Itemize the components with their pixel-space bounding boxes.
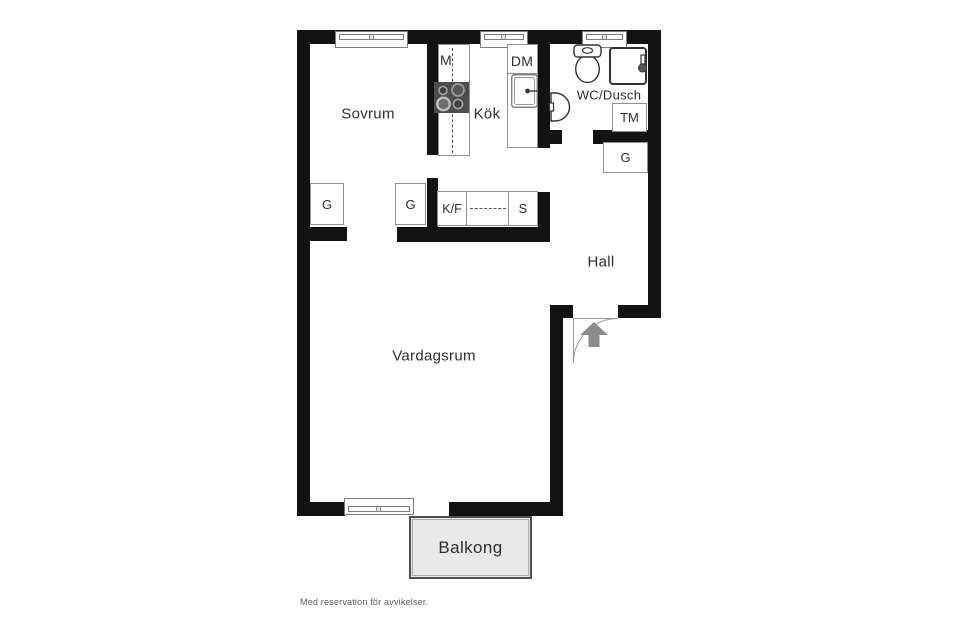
- toilet-icon: [572, 44, 603, 84]
- appliance-label-dishwasher: DM: [511, 53, 533, 69]
- pantry-cell: S: [508, 192, 537, 225]
- window-mullion: [602, 35, 607, 39]
- wardrobe-label: G: [620, 150, 630, 165]
- floorplan-canvas: K/F S G G G TM: [0, 0, 960, 640]
- room-label-kok: Kök: [474, 106, 501, 123]
- room-label-balkong: Balkong: [438, 538, 502, 558]
- wardrobe-g-bedroom: G: [310, 183, 344, 225]
- window-glass: [348, 506, 410, 512]
- wardrobe-g-kitchen: G: [395, 183, 426, 225]
- pantry-label: S: [519, 201, 528, 216]
- sink-icon: [511, 74, 538, 108]
- wall-right-lower: [550, 305, 563, 516]
- wall-kitchen-bottom: [397, 227, 549, 242]
- wardrobe-label: G: [405, 197, 415, 212]
- washing-machine-label: TM: [620, 110, 639, 125]
- washbasin-icon: [549, 91, 572, 123]
- wall-entry-stub-left: [550, 305, 573, 318]
- wall-right-upper: [648, 30, 661, 318]
- wall-left: [297, 30, 310, 516]
- room-label-vardagsrum: Vardagsrum: [392, 348, 476, 365]
- room-label-sovrum: Sovrum: [341, 106, 394, 123]
- fridge-freezer-cell: K/F: [438, 192, 466, 225]
- disclaimer-text: Med reservation för avvikelser.: [300, 597, 428, 607]
- window-bedroom: [335, 31, 408, 48]
- window-livingroom: [344, 498, 414, 515]
- kitchen-counter-row: K/F S: [437, 191, 538, 226]
- balcony: Balkong: [409, 516, 532, 579]
- counter-middle-cell: [466, 192, 508, 225]
- room-label-hall: Hall: [587, 254, 614, 271]
- counter-dashed-line: [470, 208, 506, 209]
- wall-bottom-left: [297, 502, 345, 516]
- wall-bathroom-stub-left: [550, 130, 562, 144]
- window-glass: [586, 34, 623, 40]
- wall-bottom-right: [449, 502, 563, 516]
- wardrobe-g-hall: G: [603, 142, 648, 173]
- window-glass: [339, 34, 404, 40]
- window-mullion: [369, 35, 374, 39]
- shower-icon: [609, 47, 648, 85]
- appliance-label-microwave: M: [440, 52, 452, 68]
- washing-machine-box: TM: [612, 103, 647, 132]
- wall-bedroom-stub: [308, 227, 347, 241]
- stove-icon: [434, 82, 469, 113]
- fridge-freezer-label: K/F: [442, 202, 461, 216]
- wall-entry-stub-right: [618, 305, 661, 318]
- window-mullion: [376, 507, 381, 511]
- window-glass: [484, 34, 524, 40]
- entry-arrow-icon: [579, 322, 609, 348]
- wall-pantry-right: [538, 192, 550, 242]
- wardrobe-label: G: [322, 197, 332, 212]
- room-label-wc-dusch: WC/Dusch: [577, 88, 642, 103]
- window-mullion: [501, 35, 506, 39]
